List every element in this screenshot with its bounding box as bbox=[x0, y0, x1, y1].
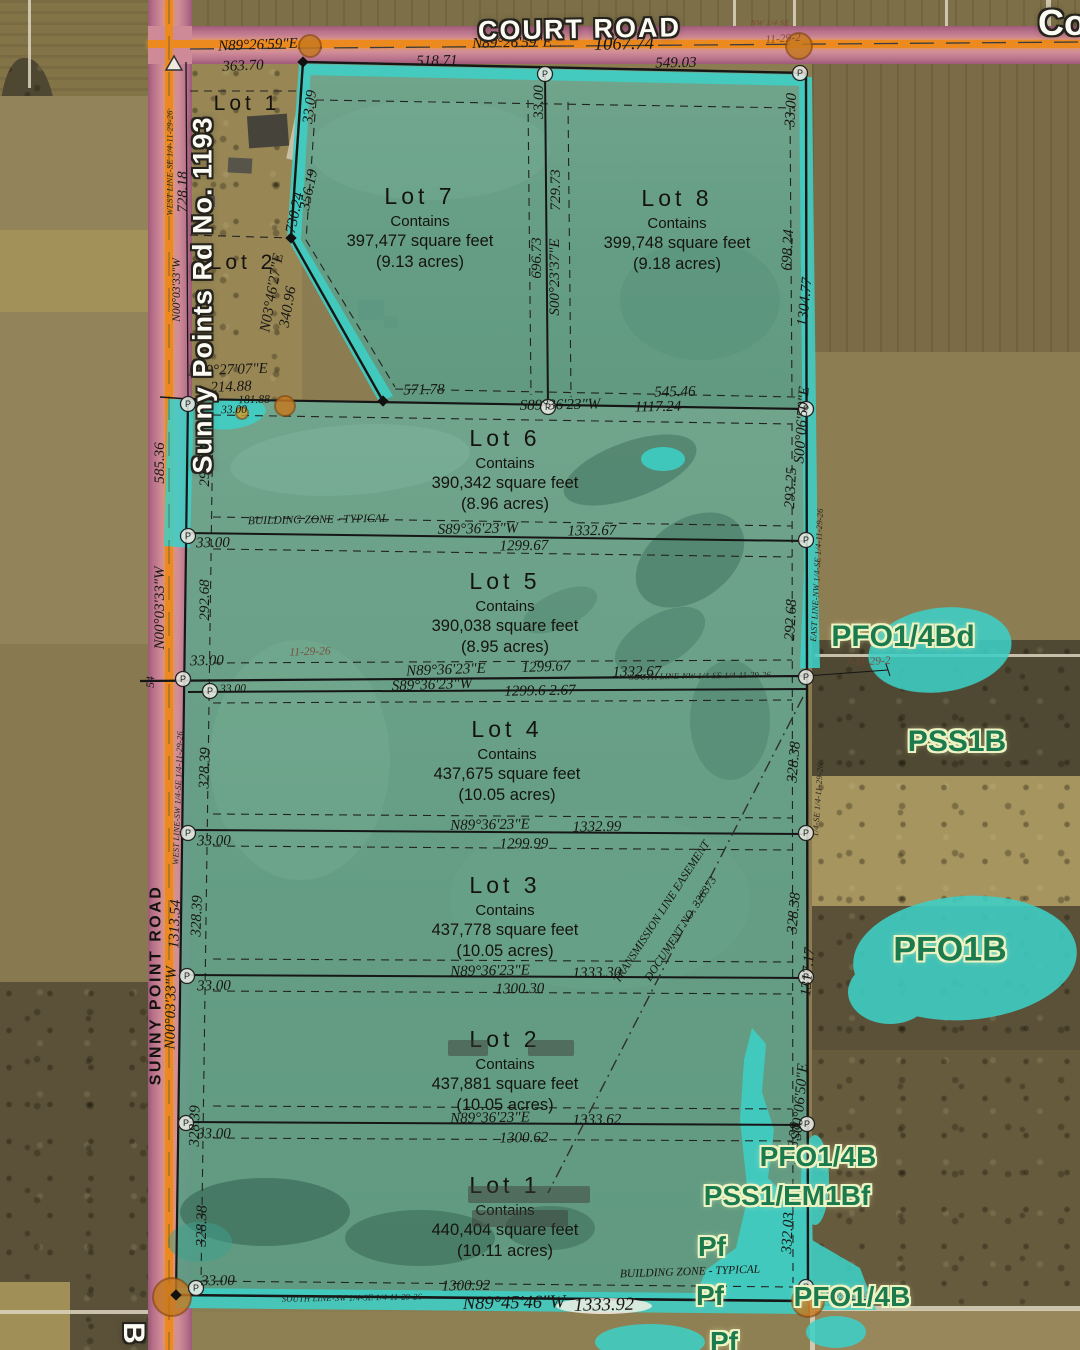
lot-sqft: 390,342 square feet bbox=[432, 474, 579, 493]
survey-label: 1299.67 bbox=[521, 659, 570, 676]
lot-acres: (9.13 acres) bbox=[347, 253, 494, 272]
survey-label: 33.00 bbox=[783, 93, 800, 128]
survey-label: 1332.99 bbox=[572, 820, 621, 837]
survey-label: 363.70 bbox=[222, 58, 264, 75]
survey-label: 356.19 bbox=[298, 168, 322, 212]
survey-label: 292.68 bbox=[198, 579, 214, 620]
text-smudge bbox=[468, 1186, 590, 1203]
survey-label: 1299.6 2.67 bbox=[504, 684, 576, 701]
survey-label: 1332.67 bbox=[567, 524, 616, 541]
lot-contains: Contains bbox=[432, 1056, 579, 1073]
survey-label: 7-11-29-2 bbox=[845, 655, 891, 669]
survey-label: 328.38 bbox=[195, 1205, 211, 1247]
survey-label: 328.38 bbox=[785, 741, 804, 783]
lot-acres: (10.05 acres) bbox=[434, 786, 581, 805]
survey-label: 328.38 bbox=[785, 892, 804, 934]
survey-label: 332.03 bbox=[780, 1212, 798, 1254]
wetland-label: Pf bbox=[696, 1280, 724, 1312]
survey-label: SOUTH LINE-NW 1/4-SE 1/4-11-29-26 bbox=[629, 670, 771, 681]
lot-acres: (8.96 acres) bbox=[432, 495, 579, 514]
text-smudge bbox=[528, 1040, 574, 1056]
survey-label: BUILDING ZONE - TYPICAL bbox=[620, 1264, 761, 1281]
wetland-label: PFO1/4B bbox=[760, 1141, 877, 1173]
labels-layer: N89°26'59"E363.70N89°26'59"E1067.74518.7… bbox=[0, 0, 1080, 1350]
lot-contains: Contains bbox=[604, 215, 751, 232]
survey-label: 33.00 bbox=[197, 979, 231, 995]
survey-label: 11-29-2 bbox=[765, 32, 801, 47]
lot-acres: (8.95 acres) bbox=[432, 638, 579, 657]
lot-label: Lot 7 bbox=[347, 183, 494, 210]
survey-label: 1317.17 bbox=[799, 947, 819, 997]
excluded-lot-label: Lot 1 bbox=[214, 92, 281, 116]
survey-label: 33.00 bbox=[220, 683, 246, 696]
survey-label: WEST LINE-SE 1/4-11-29-26 bbox=[166, 110, 175, 215]
survey-label: N89°45'46"W bbox=[463, 1293, 566, 1314]
wetland-label: PFO1B bbox=[893, 931, 1006, 970]
survey-label: 729.73 bbox=[549, 169, 565, 210]
survey-label: 33.00 bbox=[190, 654, 224, 670]
excluded-lot-label: Lot 2 bbox=[210, 251, 277, 275]
lot-label: Lot 4 bbox=[434, 716, 581, 743]
survey-label: 1/4-SE 1/4-11-29-26 bbox=[811, 763, 825, 837]
lot-block: Lot 4Contains437,675 square feet(10.05 a… bbox=[434, 716, 581, 805]
lot-contains: Contains bbox=[434, 746, 581, 763]
survey-label: 696.73 bbox=[530, 237, 546, 278]
lot-block: Lot 3Contains437,778 square feet(10.05 a… bbox=[432, 872, 579, 961]
survey-label: 1304.77 bbox=[796, 277, 817, 327]
survey-label: 328.39 bbox=[189, 895, 206, 937]
survey-label: N89°36'23"E bbox=[450, 963, 530, 980]
survey-label: 33.00 bbox=[196, 536, 230, 552]
lot-sqft: 437,778 square feet bbox=[432, 921, 579, 940]
lot-acres: (9.18 acres) bbox=[604, 255, 751, 274]
lot-contains: Contains bbox=[347, 213, 494, 230]
survey-label: 698.24 bbox=[780, 229, 798, 271]
survey-plat-map: PPP PPP PPP PPP PPP PPP N89°26'59"E363.7… bbox=[0, 0, 1080, 1350]
survey-label: S00°06'50"E bbox=[792, 386, 813, 464]
lot-acres: (10.11 acres) bbox=[432, 1242, 579, 1261]
lot-acres: (10.05 acres) bbox=[432, 1096, 579, 1115]
survey-label: 1299.99 bbox=[499, 837, 548, 854]
wetland-label: PFO1/4Bd bbox=[831, 620, 974, 654]
survey-label: 518.71 bbox=[416, 54, 458, 70]
survey-label: 33.00 bbox=[197, 1127, 231, 1143]
survey-label: 33.00 bbox=[197, 834, 231, 850]
wetland-label: PSS1/EM1Bf bbox=[704, 1180, 871, 1212]
lot-block: Lot 5Contains390,038 square feet(8.95 ac… bbox=[432, 568, 579, 657]
survey-label: 54 bbox=[145, 676, 157, 688]
survey-label: N00°03'33"W bbox=[171, 258, 183, 322]
survey-label: 1333.92 bbox=[574, 1296, 634, 1316]
survey-label: 33.00 bbox=[532, 85, 548, 119]
lot-label: Lot 3 bbox=[432, 872, 579, 899]
wetland-label: PFO1/4B bbox=[794, 1281, 911, 1313]
survey-label: SOUTH LINE-SW 1/4-SE 1/4-11-29-26 bbox=[282, 1292, 422, 1303]
lot-contains: Contains bbox=[432, 598, 579, 615]
survey-label: 1117.24 bbox=[635, 400, 682, 417]
survey-label: N89°26'59"E bbox=[218, 37, 298, 56]
wetland-label: Pf bbox=[698, 1231, 726, 1263]
survey-label: NW 1/4 SE bbox=[750, 19, 789, 28]
survey-label: 1333.30 bbox=[572, 966, 621, 983]
lot-block: Lot 6Contains390,342 square feet(8.96 ac… bbox=[432, 425, 579, 514]
lot-sqft: 390,038 square feet bbox=[432, 617, 579, 636]
survey-label: WEST LINE-SW 1/4-SE 1/4-11-29-26 bbox=[171, 731, 185, 865]
wetland-label: Pf bbox=[710, 1326, 738, 1350]
survey-label: 1313.54 bbox=[167, 899, 184, 948]
lot-block: Lot 7Contains397,477 square feet(9.13 ac… bbox=[347, 183, 494, 272]
lot-acres: (10.05 acres) bbox=[432, 942, 579, 961]
survey-label: S89°36'23"W bbox=[391, 677, 472, 696]
survey-label: 33.00 bbox=[201, 1274, 235, 1290]
survey-label: 549.03 bbox=[655, 56, 697, 72]
survey-label: S89°36'23"W bbox=[520, 397, 601, 414]
lot-contains: Contains bbox=[432, 455, 579, 472]
survey-label: 33.00 bbox=[221, 404, 247, 417]
corner-road-label-co: Co bbox=[1038, 2, 1080, 44]
court-road-label: COURT ROAD bbox=[478, 12, 682, 47]
survey-label: 292.68 bbox=[783, 599, 801, 641]
survey-label: 328.39 bbox=[197, 747, 214, 789]
survey-label: 1300.30 bbox=[495, 982, 544, 999]
lot-block: Lot 8Contains399,748 square feet(9.18 ac… bbox=[604, 185, 751, 274]
survey-label: 1333.62 bbox=[572, 1113, 621, 1130]
survey-label: 11-29-26 bbox=[289, 645, 331, 658]
survey-label: 1300.62 bbox=[499, 1131, 548, 1148]
lot-sqft: 437,675 square feet bbox=[434, 765, 581, 784]
survey-label: 33.09 bbox=[301, 89, 321, 124]
lot-label: Lot 6 bbox=[432, 425, 579, 452]
text-smudge bbox=[448, 1040, 488, 1056]
survey-label: S00°23'37"E bbox=[548, 238, 564, 315]
survey-label: N89°36'23"E bbox=[450, 817, 530, 834]
survey-label: 571.78 bbox=[403, 383, 445, 399]
survey-label: N00°03'33"W bbox=[153, 566, 169, 649]
sunny-points-rd-sign: Sunny Points Rd No. 1193 bbox=[188, 116, 219, 473]
survey-label: 1300.92 bbox=[441, 1279, 490, 1296]
survey-label: S89°36'23"W bbox=[438, 521, 519, 538]
survey-label: 585.36 bbox=[153, 442, 169, 483]
survey-label: 293.25 bbox=[783, 467, 801, 509]
lot-sqft: 397,477 square feet bbox=[347, 232, 494, 251]
edge-road-letter: B bbox=[116, 1322, 150, 1344]
survey-label: 1299.67 bbox=[499, 539, 548, 556]
wetland-label: PSS1B bbox=[908, 725, 1006, 759]
lot-sqft: 437,881 square feet bbox=[432, 1075, 579, 1094]
lot-label: Lot 5 bbox=[432, 568, 579, 595]
lot-label: Lot 8 bbox=[604, 185, 751, 212]
lot-contains: Contains bbox=[432, 902, 579, 919]
survey-label: EAST LINE-NW 1/4-SE 1/4-11-29-26 bbox=[809, 508, 825, 642]
survey-label: BUILDING ZONE - TYPICAL bbox=[248, 513, 388, 528]
lot-sqft: 399,748 square feet bbox=[604, 234, 751, 253]
text-smudge bbox=[472, 1210, 568, 1227]
survey-label: N00°03'33"W bbox=[163, 966, 180, 1049]
